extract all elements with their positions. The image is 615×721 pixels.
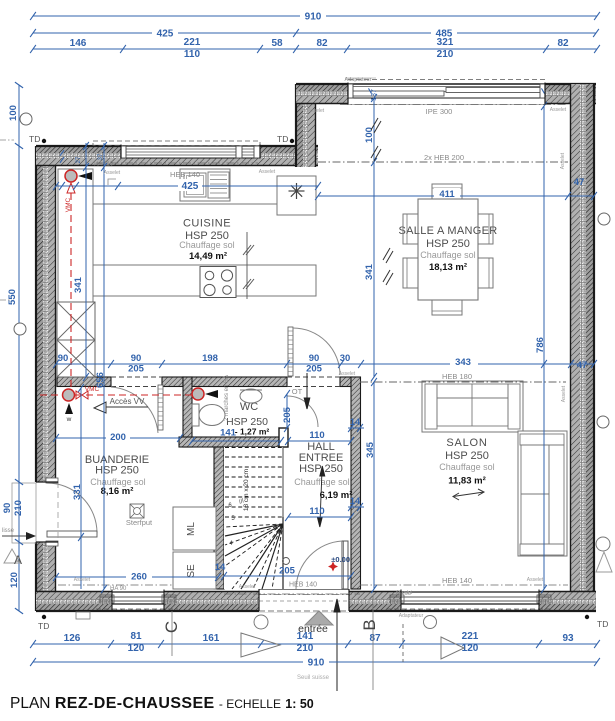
- svg-text:93: 93: [562, 633, 574, 644]
- svg-text:SALLE A MANGER: SALLE A MANGER: [399, 225, 498, 237]
- svg-text:Asselet: Asselet: [339, 371, 356, 377]
- svg-text:110: 110: [309, 506, 324, 517]
- svg-text:11,83 m²: 11,83 m²: [448, 476, 486, 487]
- svg-text:221: 221: [184, 37, 201, 48]
- svg-text:90: 90: [131, 353, 142, 364]
- svg-text:Asselet: Asselet: [239, 584, 256, 590]
- svg-text:w: w: [66, 416, 72, 423]
- svg-text:141: 141: [297, 631, 314, 642]
- svg-text:HEB 180: HEB 180: [442, 372, 472, 381]
- svg-text:Chauffage sol: Chauffage sol: [179, 240, 234, 250]
- svg-text:786: 786: [535, 337, 546, 353]
- svg-text:47: 47: [574, 177, 585, 188]
- svg-text:100: 100: [8, 105, 19, 121]
- svg-text:425: 425: [182, 181, 199, 192]
- svg-text:126: 126: [64, 633, 81, 644]
- svg-text:SALON: SALON: [446, 437, 487, 449]
- svg-text:8,16 m²: 8,16 m²: [101, 486, 134, 497]
- svg-text:198: 198: [202, 353, 218, 364]
- svg-text:146: 146: [70, 38, 87, 49]
- svg-text:18 cm x 20 cm: 18 cm x 20 cm: [243, 469, 250, 511]
- svg-text:Asselet: Asselet: [396, 590, 413, 596]
- svg-text:81: 81: [130, 631, 142, 642]
- svg-text:14: 14: [215, 562, 226, 573]
- svg-text:100: 100: [364, 127, 375, 143]
- svg-text:Asselet: Asselet: [104, 170, 121, 176]
- svg-text:550: 550: [7, 289, 18, 305]
- svg-text:Asselet: Asselet: [259, 169, 276, 175]
- svg-text:6,19 m²: 6,19 m²: [320, 490, 353, 501]
- svg-text:HEB 140: HEB 140: [289, 582, 317, 589]
- svg-text:82: 82: [557, 38, 569, 49]
- svg-text:120: 120: [462, 643, 479, 654]
- svg-text:120: 120: [9, 572, 20, 588]
- svg-text:341: 341: [364, 263, 375, 280]
- svg-text:90: 90: [309, 353, 320, 364]
- svg-text:±0.00: ±0.00: [331, 555, 350, 564]
- svg-text:lisse: lisse: [2, 528, 15, 534]
- svg-text:HSP 250: HSP 250: [445, 450, 489, 462]
- svg-text:90: 90: [2, 503, 13, 514]
- svg-text:HSP 250: HSP 250: [95, 465, 139, 477]
- svg-text:30: 30: [340, 353, 351, 364]
- svg-text:260: 260: [131, 572, 147, 583]
- svg-text:82: 82: [316, 38, 328, 49]
- svg-text:137: 137: [371, 89, 378, 101]
- svg-text:14,49 m²: 14,49 m²: [189, 251, 227, 262]
- svg-text:14: 14: [350, 496, 361, 507]
- svg-text:343: 343: [455, 357, 471, 368]
- svg-text:910: 910: [305, 12, 322, 23]
- svg-text:IPE 300: IPE 300: [426, 107, 453, 116]
- svg-text:SE: SE: [186, 564, 197, 578]
- svg-text:47: 47: [577, 360, 588, 371]
- svg-text:411: 411: [439, 189, 455, 200]
- svg-text:Sterfput: Sterfput: [126, 518, 153, 527]
- svg-text:37: 37: [98, 153, 104, 160]
- svg-text:205: 205: [282, 406, 293, 423]
- svg-text:Asselet: Asselet: [550, 107, 567, 113]
- svg-text:TD: TD: [38, 621, 49, 631]
- svg-text:210: 210: [297, 643, 314, 654]
- svg-text:B: B: [360, 619, 379, 630]
- svg-text:Accès VV: Accès VV: [110, 397, 145, 406]
- svg-text:110: 110: [184, 49, 201, 60]
- svg-text:HA 90: HA 90: [110, 586, 127, 592]
- svg-text:210: 210: [13, 500, 24, 516]
- svg-text:PLAN REZ-DE-CHAUSSEE - ECHELLE: PLAN REZ-DE-CHAUSSEE - ECHELLE 1: 50: [10, 695, 314, 712]
- svg-text:Asselet: Asselet: [527, 577, 544, 583]
- svg-text:Asselet: Asselet: [74, 577, 91, 583]
- svg-text:- 1,27 m²: - 1,27 m²: [235, 427, 270, 437]
- svg-text:90: 90: [58, 353, 69, 364]
- svg-text:CUISINE: CUISINE: [183, 218, 231, 230]
- svg-text:C: C: [162, 621, 181, 633]
- svg-text:321: 321: [437, 37, 454, 48]
- svg-text:120: 120: [128, 643, 145, 654]
- svg-text:205: 205: [128, 364, 145, 375]
- svg-text:2 marches en BA: 2 marches en BA: [224, 375, 230, 421]
- svg-text:110: 110: [309, 430, 324, 441]
- svg-text:331: 331: [72, 483, 83, 500]
- svg-text:TD: TD: [29, 134, 40, 144]
- svg-text:HEB 140: HEB 140: [442, 576, 472, 585]
- svg-text:TD: TD: [277, 134, 288, 144]
- svg-text:58: 58: [271, 38, 283, 49]
- svg-text:VMC: VMC: [65, 197, 72, 212]
- svg-text:Asselet: Asselet: [308, 108, 325, 114]
- svg-text:Adaptateur: Adaptateur: [399, 613, 424, 619]
- svg-text:18,13 m²: 18,13 m²: [429, 262, 467, 273]
- svg-text:ML: ML: [186, 522, 197, 536]
- svg-text:A: A: [14, 553, 22, 567]
- svg-text:205: 205: [306, 364, 323, 375]
- svg-text:425: 425: [157, 29, 174, 40]
- svg-text:Asselet: Asselet: [561, 385, 567, 402]
- svg-text:Chauffage sol: Chauffage sol: [439, 462, 494, 472]
- svg-text:87: 87: [369, 633, 381, 644]
- svg-text:Seuil suisse: Seuil suisse: [297, 675, 330, 681]
- svg-text:205: 205: [279, 566, 296, 577]
- svg-text:OT: OT: [292, 387, 303, 396]
- svg-text:341: 341: [73, 276, 84, 293]
- svg-text:Chauffage sol: Chauffage sol: [420, 250, 475, 260]
- svg-text:HEB 140: HEB 140: [170, 170, 200, 179]
- svg-text:Asselet: Asselet: [560, 152, 566, 169]
- svg-text:221: 221: [462, 631, 479, 642]
- svg-text:2x HEB 200: 2x HEB 200: [424, 153, 464, 162]
- svg-text:161: 161: [203, 633, 220, 644]
- svg-text:200: 200: [110, 432, 126, 443]
- svg-text:910: 910: [308, 658, 325, 669]
- svg-text:27: 27: [76, 156, 82, 163]
- svg-text:210: 210: [437, 49, 454, 60]
- svg-text:656: 656: [95, 372, 106, 388]
- svg-text:345: 345: [365, 441, 376, 458]
- svg-text:141: 141: [220, 428, 237, 439]
- svg-text:TD: TD: [597, 619, 608, 629]
- svg-text:14: 14: [350, 417, 361, 428]
- svg-text:HSP 250: HSP 250: [426, 238, 470, 250]
